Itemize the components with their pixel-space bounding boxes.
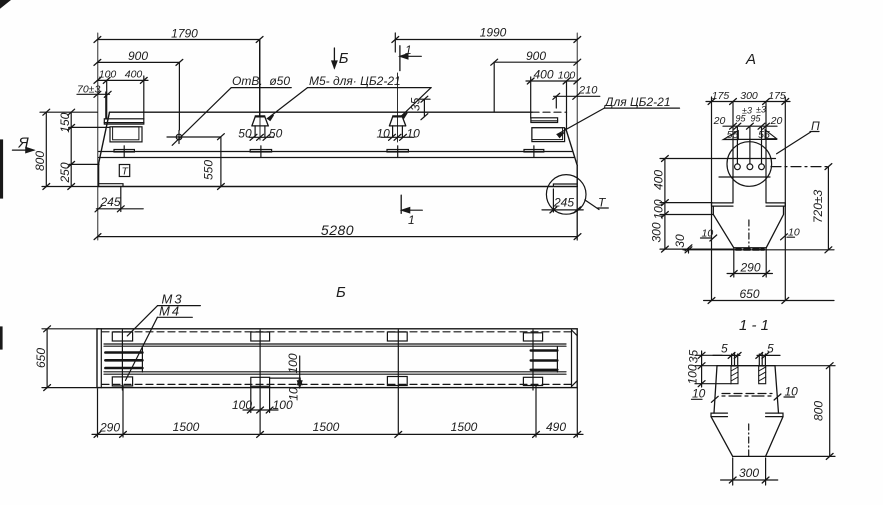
svg-text:50: 50 [238,127,252,141]
svg-text:300: 300 [739,466,759,480]
svg-text:245: 245 [100,195,121,209]
svg-text:900: 900 [128,49,148,63]
svg-text:OmB. ø50: OmB. ø50 [232,74,290,88]
svg-text:550: 550 [202,160,216,180]
svg-text:800: 800 [812,401,826,421]
svg-text:100: 100 [99,69,117,81]
svg-text:10: 10 [287,387,301,401]
svg-text:A: A [745,51,756,68]
svg-text:Б: Б [336,284,346,301]
svg-text:70±3: 70±3 [77,84,100,96]
svg-text:100: 100 [686,364,700,384]
svg-text:210: 210 [578,85,598,97]
svg-text:290: 290 [739,261,760,275]
svg-text:Для ЦБ2-21: Для ЦБ2-21 [603,95,671,109]
svg-text:1500: 1500 [173,420,200,434]
svg-text:400: 400 [652,170,666,190]
svg-text:M4: M4 [159,304,181,319]
svg-text:35: 35 [409,97,423,111]
svg-text:150: 150 [58,112,72,132]
svg-text:10: 10 [692,387,706,401]
svg-text:100: 100 [286,353,300,373]
svg-text:95: 95 [735,114,746,124]
svg-text:650: 650 [739,287,759,301]
svg-text:100: 100 [232,398,252,412]
svg-text:10: 10 [377,127,391,141]
svg-text:95: 95 [750,114,761,124]
svg-text:5: 5 [721,342,728,356]
svg-text:400: 400 [533,68,553,82]
svg-text:1790: 1790 [171,27,198,41]
svg-text:1500: 1500 [451,420,478,434]
svg-text:M5- для· ЦБ2-21: M5- для· ЦБ2-21 [309,74,401,88]
svg-text:300: 300 [740,90,758,102]
svg-text:800: 800 [33,151,47,171]
svg-text:290: 290 [99,421,120,435]
svg-text:250: 250 [58,162,72,183]
svg-text:5: 5 [767,342,774,356]
svg-text:100: 100 [558,70,576,82]
svg-text:245: 245 [553,196,574,210]
svg-text:Б: Б [339,50,349,67]
svg-text:650: 650 [34,348,48,368]
svg-text:1: 1 [408,213,415,227]
svg-text:100: 100 [652,199,666,219]
svg-text:50: 50 [269,127,283,141]
svg-text:175: 175 [768,90,786,102]
svg-text:10: 10 [407,127,421,141]
svg-text:30: 30 [673,234,687,248]
svg-text:175: 175 [712,90,730,102]
svg-text:1990: 1990 [480,26,507,40]
svg-text:720±3: 720±3 [811,190,825,224]
svg-text:20: 20 [770,115,783,127]
svg-text:35: 35 [687,350,701,364]
svg-text:1500: 1500 [313,420,340,434]
svg-text:400: 400 [125,69,143,81]
svg-text:490: 490 [546,420,566,434]
svg-text:300: 300 [650,222,664,242]
svg-text:20: 20 [713,115,726,127]
svg-text:900: 900 [526,49,546,63]
svg-text:1 - 1: 1 - 1 [739,317,769,334]
svg-text:1: 1 [405,43,412,57]
svg-text:5280: 5280 [321,222,354,238]
